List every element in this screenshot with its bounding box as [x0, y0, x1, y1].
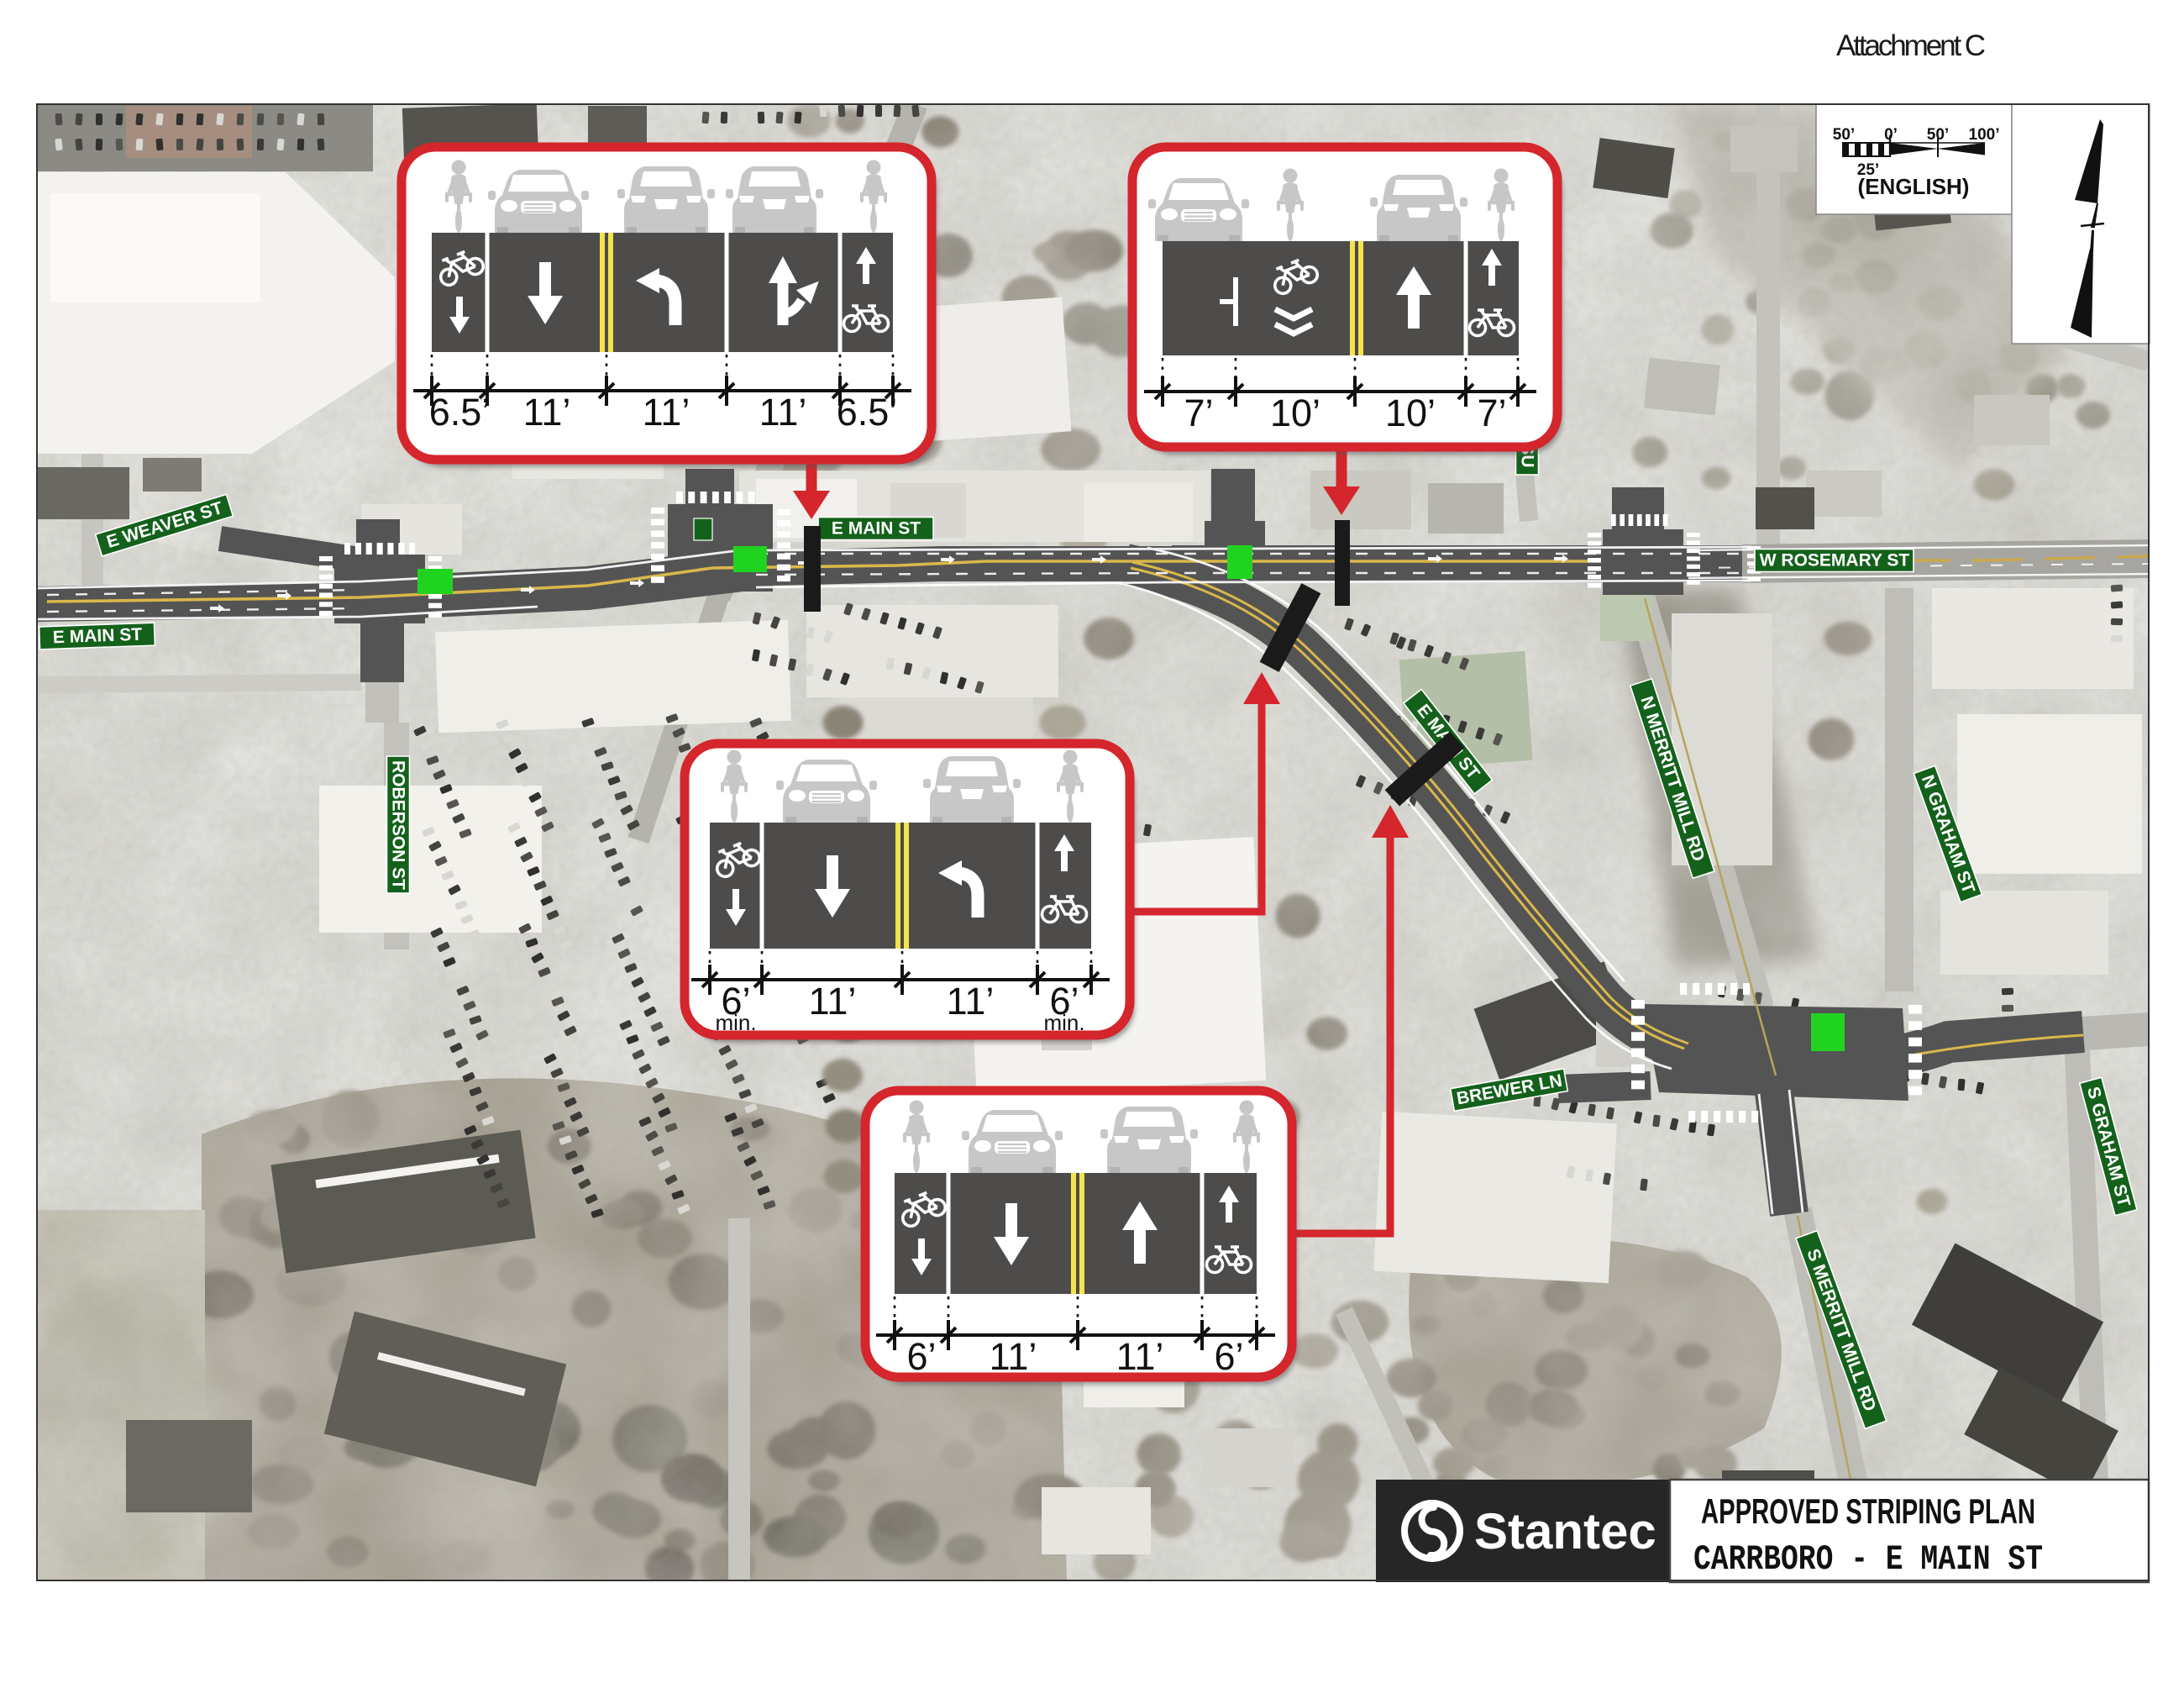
svg-text:min.: min. [715, 1010, 756, 1035]
svg-text:7’: 7’ [1184, 392, 1213, 434]
svg-text:100’: 100’ [1969, 126, 2000, 144]
svg-text:ROBERSON ST: ROBERSON ST [389, 760, 408, 890]
svg-text:11’: 11’ [643, 391, 690, 434]
svg-text:10’: 10’ [1385, 392, 1436, 434]
svg-text:6’: 6’ [906, 1335, 936, 1378]
svg-text:CARRBORO - E MAIN ST: CARRBORO - E MAIN ST [1693, 1539, 2043, 1580]
svg-text:(ENGLISH): (ENGLISH) [1858, 174, 1970, 199]
svg-text:11’: 11’ [809, 980, 857, 1023]
svg-text:Stantec: Stantec [1474, 1503, 1656, 1559]
svg-text:7’: 7’ [1477, 392, 1506, 434]
svg-text:6.5’: 6.5’ [837, 391, 898, 434]
svg-text:E MAIN ST: E MAIN ST [53, 625, 143, 648]
svg-text:11’: 11’ [759, 391, 807, 434]
svg-text:6.5’: 6.5’ [429, 391, 491, 434]
svg-text:50’: 50’ [1833, 126, 1855, 144]
svg-text:11’: 11’ [523, 391, 571, 434]
svg-text:11’: 11’ [990, 1335, 1037, 1378]
svg-text:10’: 10’ [1270, 392, 1320, 434]
svg-text:6’: 6’ [1214, 1335, 1243, 1378]
svg-text:Attachment C: Attachment C [1836, 29, 1986, 62]
svg-text:11’: 11’ [1116, 1335, 1164, 1378]
svg-text:APPROVED STRIPING PLAN: APPROVED STRIPING PLAN [1701, 1491, 2035, 1531]
svg-text:W ROSEMARY ST: W ROSEMARY ST [1760, 551, 1910, 571]
svg-text:min.: min. [1043, 1010, 1084, 1035]
svg-text:11’: 11’ [947, 980, 995, 1023]
svg-text:E MAIN ST: E MAIN ST [832, 519, 921, 539]
